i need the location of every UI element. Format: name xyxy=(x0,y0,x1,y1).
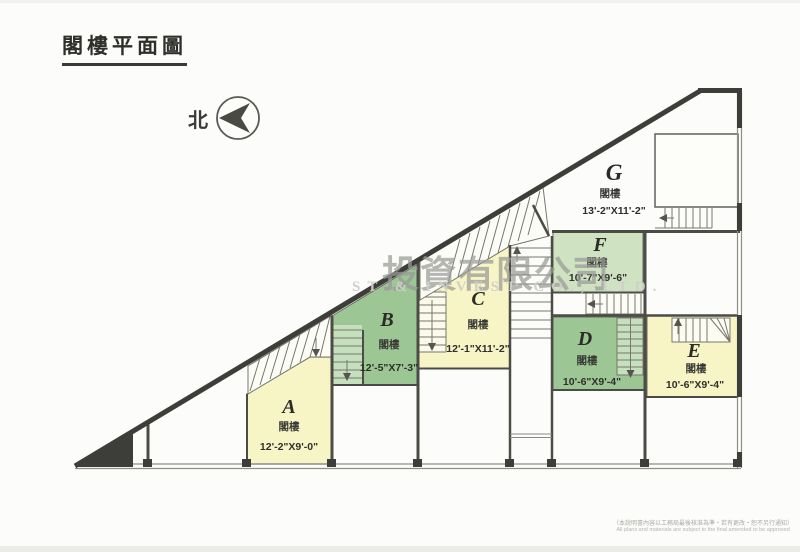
disclaimer-footnote: （本說明書內容以工務局最後核准為準・若有更改・恕不另行通知） All plans… xyxy=(610,518,796,533)
unit-f-dimensions: 10'-7"X9'-6" xyxy=(569,272,627,284)
disclaimer-cjk: （本說明書內容以工務局最後核准為準・若有更改・恕不另行通知） xyxy=(610,518,796,527)
unit-c-dimensions: 12'-1"X11'-2" xyxy=(446,343,509,355)
unit-b-letter: B xyxy=(379,309,393,331)
unit-g-dimensions: 13'-2"X11'-2" xyxy=(582,205,645,217)
unit-c-floor-label: 閣樓 xyxy=(468,318,489,331)
unit-c-staircase xyxy=(419,292,446,352)
unit-e-letter: E xyxy=(686,340,700,362)
unit-g-staircase xyxy=(655,208,712,228)
unit-d-floor-label: 閣樓 xyxy=(577,354,598,367)
unit-e-floor-label: 閣樓 xyxy=(686,362,707,375)
north-arrow-icon xyxy=(217,97,259,139)
corridor-staircase xyxy=(511,246,551,338)
unit-g-subroom xyxy=(655,134,738,207)
unit-f-letter: F xyxy=(592,234,607,256)
unit-d-letter: D xyxy=(577,328,592,350)
unit-e-dimensions: 10'-6"X9'-4" xyxy=(666,379,724,391)
unit-e-staircase xyxy=(672,318,730,342)
unit-a-floor-label: 閣樓 xyxy=(279,420,300,433)
scan-edge xyxy=(0,546,800,552)
unit-d-dimensions: 10'-6"X9'-4" xyxy=(563,376,621,388)
unit-g-floor-label: 閣樓 xyxy=(600,187,621,200)
scanned-floor-plan-page: 閣樓平面圖 北 xyxy=(0,0,800,552)
unit-f-staircase xyxy=(586,293,644,314)
unit-b-dimensions: 12'-5"X7'-3" xyxy=(360,362,418,374)
disclaimer-en: All plans and materials are subject to t… xyxy=(610,527,796,533)
unit-a-letter: A xyxy=(280,396,295,418)
column-footings xyxy=(143,459,742,467)
floor-plan-drawing: A 閣樓 12'-2"X9'-0" B 閣樓 12'-5"X7'-3" C 閣樓… xyxy=(0,0,800,552)
unit-g-letter: G xyxy=(606,160,623,185)
unit-b-staircase xyxy=(333,325,362,384)
unit-rooms xyxy=(247,134,738,464)
unit-a-dimensions: 12'-2"X9'-0" xyxy=(260,441,318,453)
unit-c-letter: C xyxy=(471,288,485,310)
unit-d-staircase xyxy=(617,318,643,378)
unit-b-floor-label: 閣樓 xyxy=(379,338,400,351)
unit-f-floor-label: 閣樓 xyxy=(587,256,608,269)
